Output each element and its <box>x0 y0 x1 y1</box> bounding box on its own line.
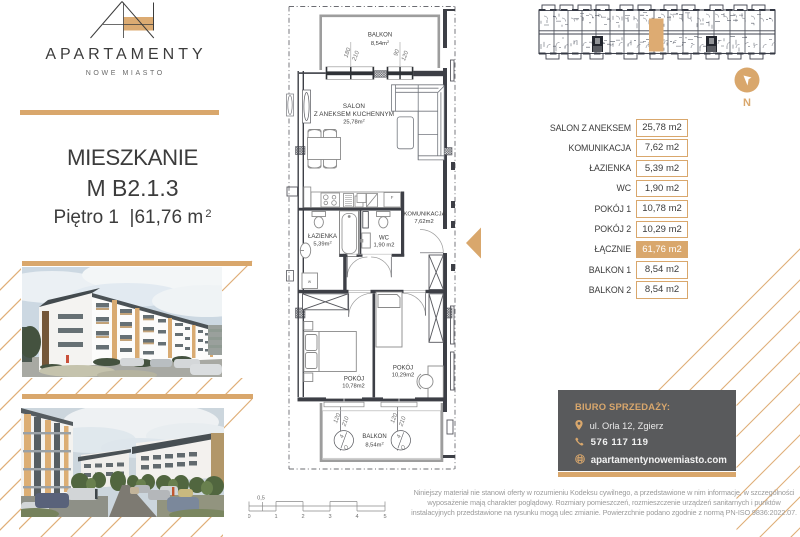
svg-text:POKÓJ: POKÓJ <box>393 365 413 372</box>
svg-text:5,39m2: 5,39m2 <box>313 239 332 248</box>
svg-text:F: F <box>391 195 394 200</box>
svg-text:N: N <box>743 97 751 109</box>
svg-text:Z ANEKSEM KUCHENNYM: Z ANEKSEM KUCHENNYM <box>314 111 394 118</box>
svg-text:8,54m2: 8,54m2 <box>365 440 384 449</box>
svg-text:1,90 m2: 1,90 m2 <box>374 243 395 249</box>
svg-text:1: 1 <box>274 514 277 520</box>
svg-text:120: 120 <box>333 412 342 424</box>
svg-text:180: 180 <box>343 47 352 59</box>
svg-text:210: 210 <box>341 415 351 428</box>
svg-text:25,78m2: 25,78m2 <box>343 117 365 126</box>
svg-text:2: 2 <box>301 514 304 520</box>
svg-text:0: 0 <box>248 514 251 520</box>
svg-text:3: 3 <box>328 514 331 520</box>
svg-text:5: 5 <box>383 514 386 520</box>
svg-text:0,5: 0,5 <box>257 496 265 502</box>
svg-text:POKÓJ: POKÓJ <box>344 376 364 383</box>
svg-text:7,62m2: 7,62m2 <box>414 219 433 225</box>
svg-text:ŁAZIENKA: ŁAZIENKA <box>308 234 337 240</box>
svg-text:10,78m2: 10,78m2 <box>342 384 365 390</box>
svg-text:WC: WC <box>379 236 390 242</box>
svg-text:210: 210 <box>352 50 362 63</box>
svg-text:120: 120 <box>401 50 410 62</box>
svg-text:210: 210 <box>398 415 408 428</box>
svg-text:8,54m2: 8,54m2 <box>371 38 390 47</box>
svg-text:SALON: SALON <box>343 103 366 110</box>
svg-text:10,29m2: 10,29m2 <box>392 373 415 379</box>
svg-text:KOMUNIKACJA: KOMUNIKACJA <box>404 212 446 218</box>
svg-text:4: 4 <box>355 514 358 520</box>
svg-text:120: 120 <box>390 412 399 424</box>
